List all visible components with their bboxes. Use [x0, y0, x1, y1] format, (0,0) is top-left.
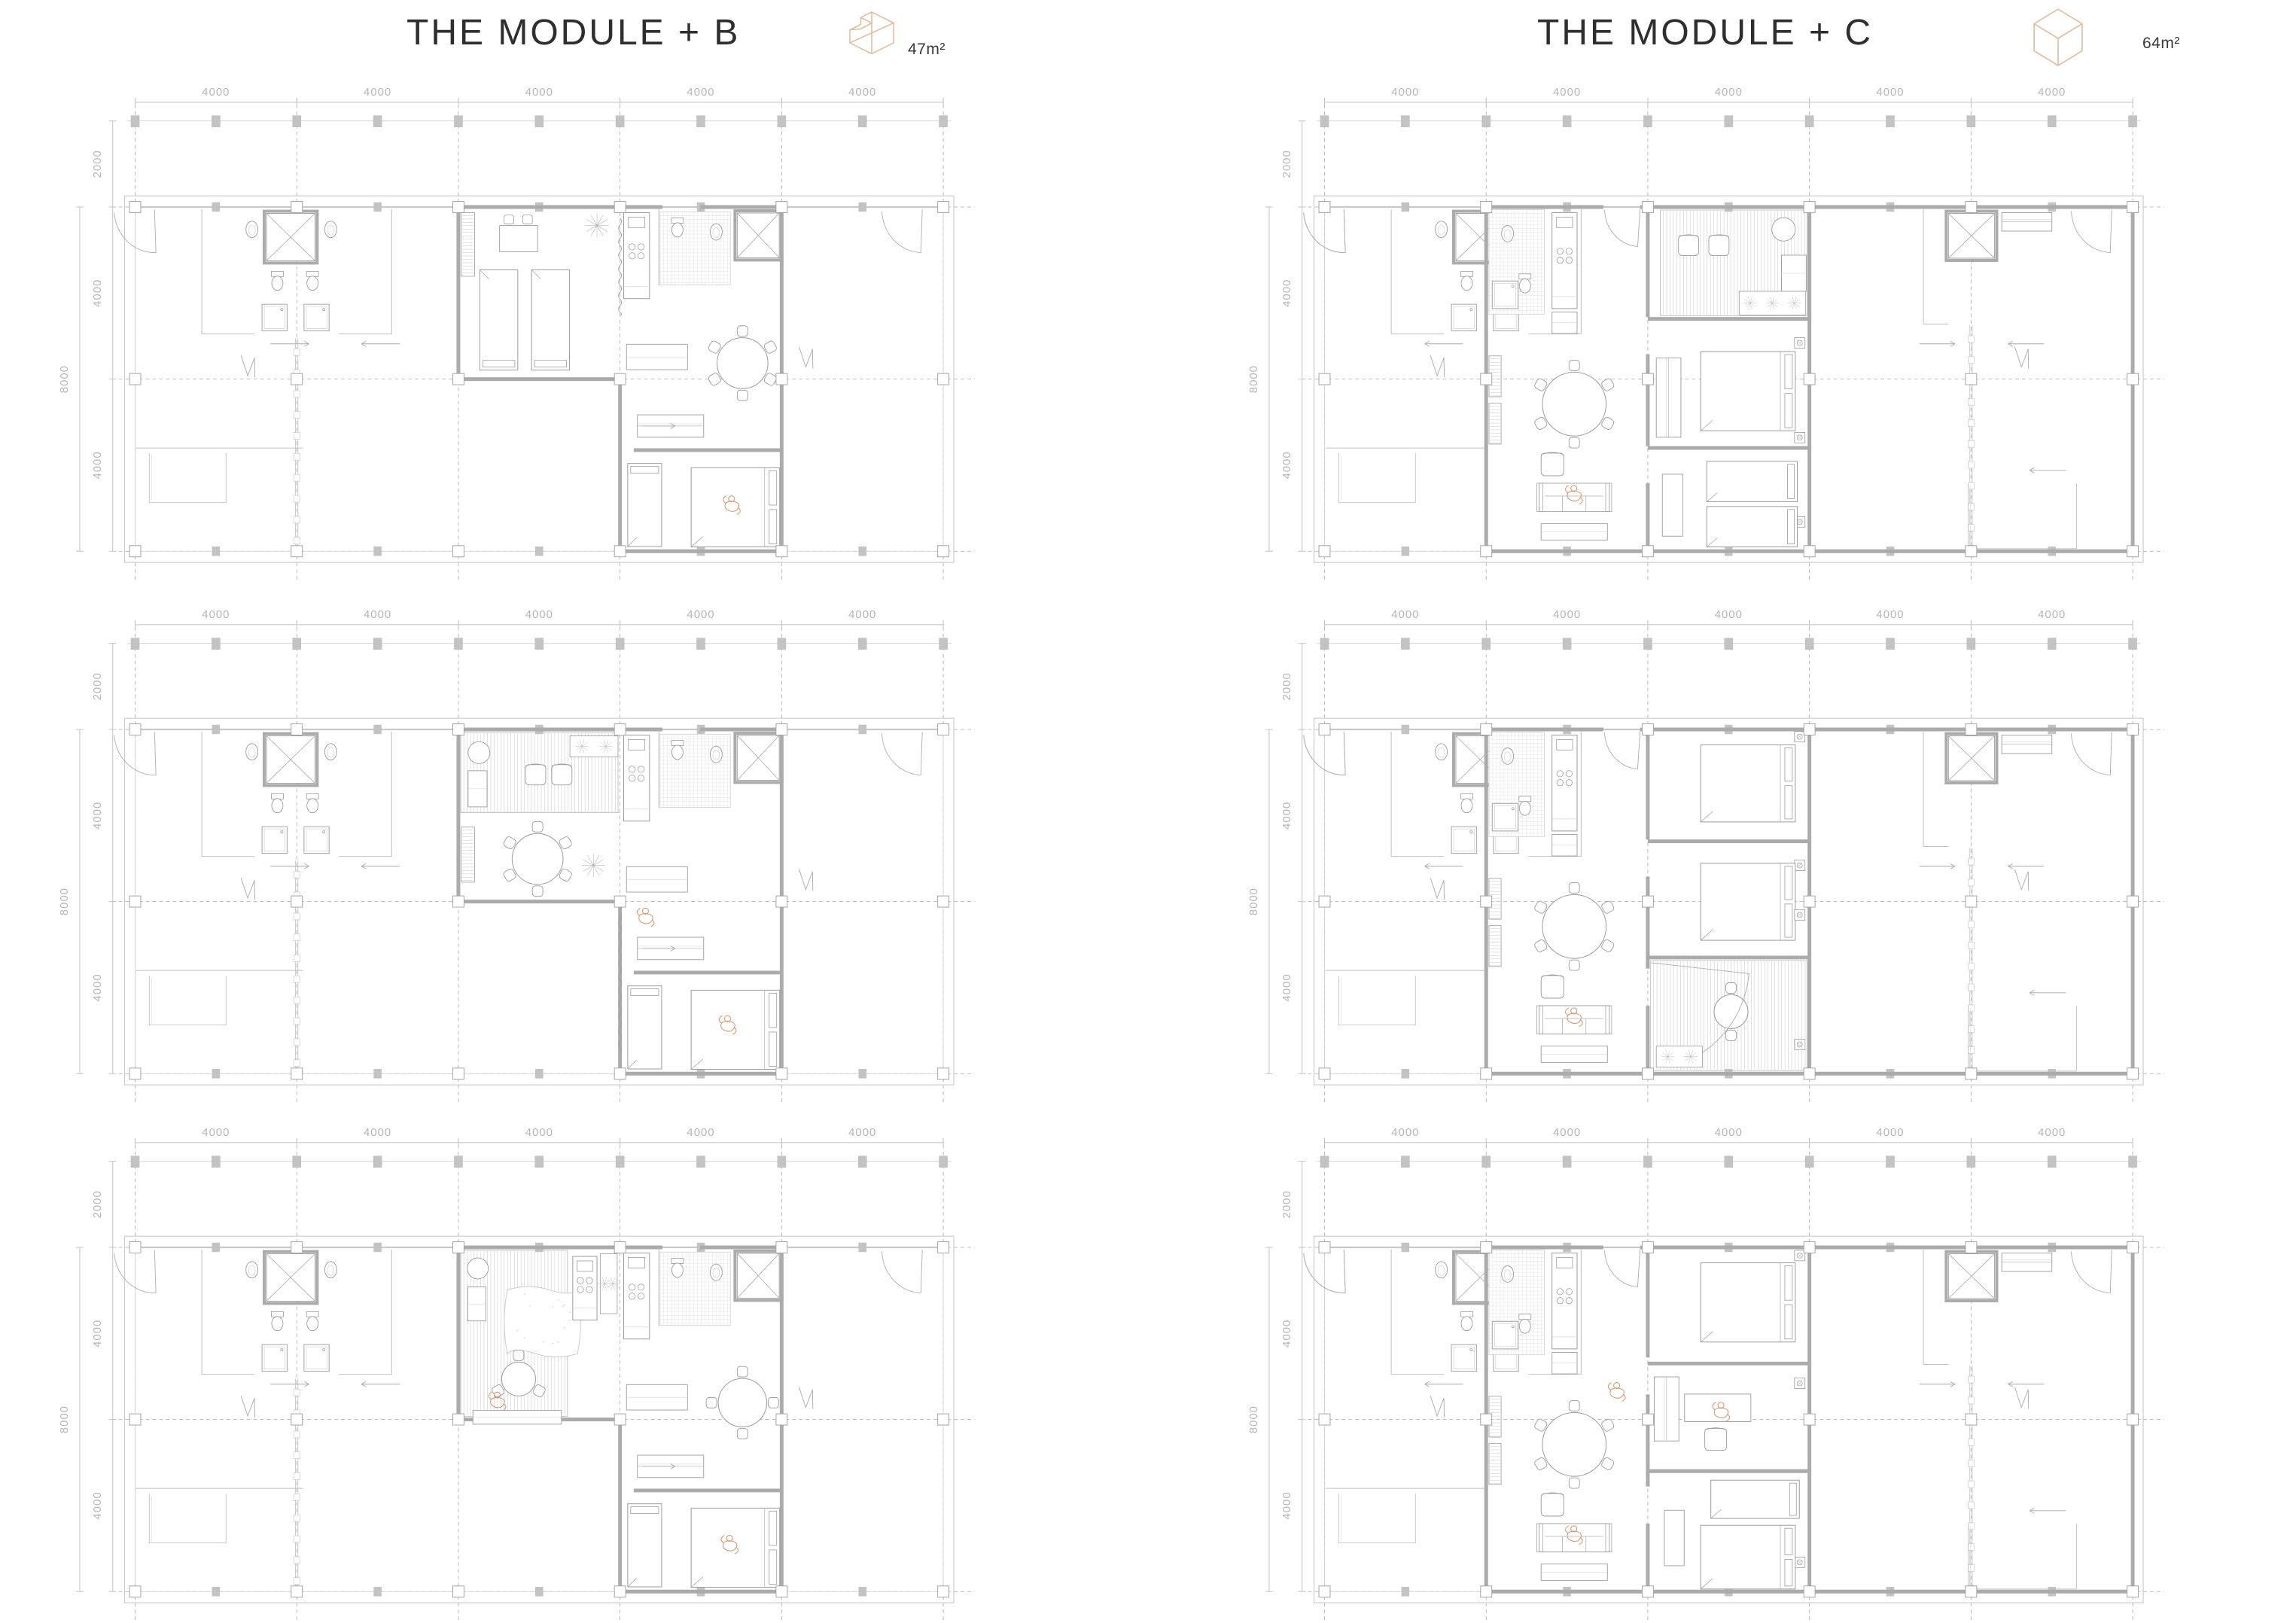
dimension-label: 4000 [525, 1127, 553, 1139]
dimension-lines: 400040004000400040002000400040008000 [1248, 1127, 2133, 1591]
direction-arrow [1425, 341, 1463, 346]
dimension-label: 2000 [92, 1190, 104, 1218]
sink [1451, 1344, 1476, 1371]
washbasin [324, 221, 336, 238]
door-swing [882, 209, 923, 252]
planter [570, 736, 618, 757]
direction-arrow [2030, 1508, 2066, 1513]
toilet [272, 271, 284, 290]
break-symbol [1430, 1396, 1444, 1417]
sofa [1537, 483, 1612, 512]
door-swing [2072, 1250, 2112, 1293]
dimension-label: 4000 [364, 609, 391, 621]
shelf [1489, 1444, 1501, 1484]
closet-outline [149, 976, 226, 1025]
shower-unit [264, 734, 317, 786]
direction-arrow [270, 1381, 309, 1387]
round-dining-table [503, 821, 573, 896]
dimension-label: 2000 [1281, 150, 1293, 178]
dimension-label: 4000 [92, 802, 104, 830]
double-bed [1701, 745, 1795, 822]
round-dining-table [706, 1366, 778, 1439]
ceiling-fan-symbol [1795, 909, 1805, 920]
wardrobe [2002, 212, 2052, 231]
colonnade-columns [1317, 638, 2141, 650]
floor-plan-module-c-plan-3: 400040004000400040002000400040008000 [1235, 1120, 2170, 1623]
dimension-label: 4000 [1715, 87, 1743, 99]
ceiling-fan-symbol [1795, 1557, 1805, 1567]
kitchen-counter [573, 1256, 597, 1320]
closet-outline [1338, 976, 1415, 1025]
washbasin [1436, 1262, 1448, 1278]
double-bed [691, 990, 780, 1069]
ceiling-fan-symbol [1795, 1039, 1805, 1049]
washbasin [324, 1262, 336, 1278]
shower-unit [735, 733, 781, 782]
shower-unit [1946, 1252, 1996, 1301]
toilet [1519, 1314, 1531, 1333]
single-bed [628, 464, 662, 547]
kitchen-counter [1552, 212, 1577, 308]
closet-outline [1338, 453, 1415, 503]
sink [304, 304, 329, 330]
cabinet [468, 771, 487, 807]
toilet [1461, 271, 1473, 290]
double-bed [691, 1508, 780, 1587]
toilet [671, 741, 684, 760]
chair [1705, 1428, 1727, 1451]
dimension-label: 2000 [1281, 672, 1293, 700]
chair [1541, 975, 1564, 998]
break-symbol [2014, 347, 2028, 369]
direction-arrow [2030, 467, 2066, 473]
shelf [1489, 926, 1501, 967]
dimension-label: 8000 [59, 365, 71, 393]
sink [1492, 1321, 1518, 1349]
dimension-label: 4000 [2038, 609, 2066, 621]
sink [262, 304, 287, 330]
shower-unit [735, 1251, 781, 1300]
door-swing [2072, 732, 2112, 775]
dimension-label: 4000 [525, 609, 553, 621]
round-dining-table [708, 326, 778, 400]
door-swing [1605, 209, 1640, 246]
shower-unit [264, 1252, 317, 1304]
dimension-label: 4000 [848, 1127, 876, 1139]
dimension-label: 4000 [1553, 609, 1581, 621]
dimension-label: 4000 [687, 87, 714, 99]
toilet [272, 793, 284, 812]
closet-outline [149, 1494, 226, 1543]
washbasin [246, 744, 258, 760]
round-washbasin [467, 1258, 489, 1279]
direction-arrow [2008, 341, 2044, 346]
plan-content [1304, 729, 2133, 1074]
ceiling-fan-symbol [1795, 1250, 1805, 1261]
washbasin [246, 1262, 258, 1278]
dimension-lines: 400040004000400040002000400040008000 [59, 609, 943, 1073]
toilet [671, 1259, 684, 1277]
single-bed [628, 986, 662, 1069]
colonnade-columns [1317, 116, 2141, 127]
tiled-floor [660, 212, 730, 285]
sink [304, 1344, 329, 1371]
person-figure [637, 908, 654, 927]
dimension-label: 4000 [848, 609, 876, 621]
single-bed [480, 269, 517, 370]
kitchen-counter [1552, 735, 1577, 830]
closet-outline [1338, 1494, 1415, 1543]
break-symbol [799, 1387, 812, 1409]
sofa [1537, 1524, 1612, 1552]
cabinet [626, 866, 687, 892]
sink [262, 1344, 287, 1371]
wardrobe [1656, 358, 1681, 437]
floor-plan-module-b-plan-3: 400040004000400040002000400040008000 [45, 1120, 981, 1623]
dimension-label: 4000 [1553, 1127, 1581, 1139]
washbasin [1502, 748, 1514, 764]
kitchen-counter [623, 735, 649, 821]
planter [1656, 1046, 1702, 1067]
dimension-label: 4000 [1715, 1127, 1743, 1139]
dimension-label: 2000 [92, 150, 104, 178]
direction-arrow [1920, 863, 1955, 869]
double-bed [1701, 863, 1795, 940]
toilet [1519, 796, 1531, 815]
break-symbol [799, 347, 812, 369]
rug [504, 1287, 580, 1357]
dimension-label: 4000 [687, 1127, 714, 1139]
direction-arrow [270, 341, 309, 346]
dimension-label: 4000 [92, 1491, 104, 1519]
shower-unit [735, 211, 781, 260]
direction-arrow [361, 863, 400, 869]
module-c-box-isometric-icon [2027, 6, 2090, 71]
dimension-label: 4000 [1281, 451, 1293, 479]
washbasin [710, 224, 722, 240]
dimension-label: 4000 [1391, 609, 1419, 621]
desk [1662, 474, 1682, 536]
double-bed [1701, 352, 1795, 431]
break-symbol [241, 878, 254, 900]
structural-grid [119, 1138, 975, 1620]
chair [1709, 235, 1729, 256]
direction-arrow [2030, 990, 2066, 995]
plan-content [1304, 1247, 2133, 1592]
plant [582, 854, 605, 877]
washbasin [1502, 1265, 1514, 1282]
direction-arrow [1425, 863, 1463, 869]
floor-plan-cell-module-b-3: 400040004000400040002000400040008000 [45, 1120, 981, 1623]
toilet [306, 793, 318, 812]
cabinet [1541, 524, 1607, 540]
washbasin [324, 744, 336, 760]
floor-plan-module-b-plan-2: 400040004000400040002000400040008000 [45, 602, 981, 1105]
colonnade-columns [127, 1156, 952, 1168]
floor-plan-cell-module-c-1: 400040004000400040002000400040008000 [1235, 80, 2170, 583]
direction-arrow [2008, 863, 2044, 869]
dimension-label: 8000 [59, 1405, 71, 1433]
dimension-label: 4000 [1876, 87, 1904, 99]
round-dining-table [1533, 360, 1615, 448]
direction-arrow [1920, 341, 1955, 346]
module-b-title: THE MODULE + B [407, 12, 740, 53]
dimension-label: 2000 [1281, 1190, 1293, 1218]
dimension-label: 4000 [364, 87, 391, 99]
single-bed [1707, 461, 1797, 502]
break-symbol [241, 355, 254, 377]
dimension-label: 4000 [92, 451, 104, 479]
module-c-title: THE MODULE + C [1537, 12, 1873, 53]
dimension-label: 4000 [202, 609, 230, 621]
door-swing [1605, 1249, 1640, 1287]
chair [525, 764, 546, 785]
round-dining-table [1533, 882, 1615, 970]
sink [1492, 803, 1518, 831]
shelf [1489, 403, 1501, 444]
colonnade-columns [127, 638, 952, 650]
dimension-label: 4000 [92, 1320, 104, 1347]
cabinet [1782, 255, 1807, 291]
dimension-label: 4000 [1281, 802, 1293, 830]
floor-plan-cell-module-c-2: 400040004000400040002000400040008000 [1235, 602, 2170, 1105]
dimension-label: 4000 [1391, 87, 1419, 99]
dimension-label: 4000 [1876, 609, 1904, 621]
cabinet [467, 1287, 486, 1321]
washbasin [710, 1264, 722, 1280]
dimension-label: 2000 [92, 672, 104, 700]
round-dining-table [1714, 982, 1748, 1040]
toilet [306, 1311, 318, 1330]
shower-unit [264, 212, 317, 263]
toilet [1461, 793, 1473, 812]
cabinet [1541, 1046, 1607, 1063]
dimension-label: 4000 [202, 87, 230, 99]
break-symbol [799, 869, 812, 891]
cabinet [1552, 834, 1577, 856]
shelf [461, 212, 475, 276]
double-bed [1701, 1525, 1795, 1589]
planter [1739, 291, 1805, 315]
direction-arrow [270, 863, 309, 869]
ceiling-fan-symbol [1795, 732, 1805, 742]
sofa [1537, 1006, 1612, 1034]
floor-plan-cell-module-b-2: 400040004000400040002000400040008000 [45, 602, 981, 1105]
direction-arrow [361, 1381, 400, 1387]
dimension-label: 4000 [1715, 609, 1743, 621]
break-symbol [1430, 355, 1444, 377]
washbasin [1436, 744, 1448, 760]
page: THE MODULE + B 47m² THE MODULE + C 64m² … [0, 0, 2296, 1623]
sink [1451, 827, 1476, 853]
dimension-label: 4000 [1391, 1127, 1419, 1139]
ceiling-fan-symbol [1795, 1378, 1805, 1389]
cabinet [1552, 312, 1577, 333]
single-bed [1711, 1480, 1800, 1518]
dimension-label: 4000 [525, 87, 553, 99]
break-symbol [1430, 878, 1444, 900]
dimension-label: 4000 [1281, 1320, 1293, 1347]
module-b-area-label: 47m² [908, 41, 946, 59]
colonnade-columns [1317, 1156, 2141, 1168]
washbasin [246, 221, 258, 238]
structural-grid [1308, 620, 2164, 1102]
planter [598, 1254, 620, 1314]
dimension-label: 4000 [687, 609, 714, 621]
dimension-label: 8000 [1248, 1405, 1260, 1433]
dimension-label: 8000 [1248, 888, 1260, 915]
round-dining-table [1533, 1400, 1615, 1488]
floor-plan-module-c-plan-2: 400040004000400040002000400040008000 [1235, 602, 2170, 1105]
door-swing [2072, 209, 2112, 252]
toilet [671, 218, 684, 237]
dimension-label: 4000 [848, 87, 876, 99]
plant [585, 213, 609, 237]
dimension-label: 4000 [1876, 1127, 1904, 1139]
kitchen-counter [623, 1253, 649, 1338]
floor-plan-module-b-plan-1: 400040004000400040002000400040008000 [45, 80, 981, 583]
dimension-label: 4000 [2038, 87, 2066, 99]
floor-plan-cell-module-b-1: 400040004000400040002000400040008000 [45, 80, 981, 583]
single-bed [1707, 507, 1797, 547]
cabinet [626, 1384, 687, 1410]
colonnade-columns [127, 116, 952, 127]
dimension-label: 8000 [59, 888, 71, 915]
washbasin [710, 746, 722, 763]
floor-plan-module-c-plan-1: 400040004000400040002000400040008000 [1235, 80, 2170, 583]
shelf [461, 827, 475, 882]
module-c-area-label: 64m² [2142, 35, 2180, 53]
shower-unit [1946, 212, 1996, 260]
closet-outline [149, 453, 226, 503]
dimension-label: 8000 [1248, 365, 1260, 393]
washbasin [1502, 225, 1514, 242]
dimension-label: 4000 [92, 973, 104, 1001]
chair [1541, 452, 1564, 476]
cabinet [1541, 1564, 1607, 1581]
wardrobe [2002, 735, 2052, 754]
toilet [306, 271, 318, 290]
kitchen-counter [623, 212, 649, 298]
table [500, 215, 537, 252]
round-washbasin [1772, 218, 1795, 241]
module-b-l-shaped-isometric-icon [842, 9, 902, 65]
double-bed [1701, 1263, 1795, 1342]
door-swing [882, 1250, 923, 1293]
tiled-floor [660, 734, 730, 807]
person-figure [1608, 1383, 1625, 1402]
single-bed [531, 269, 569, 370]
break-symbol [241, 1396, 254, 1417]
chair [1679, 235, 1699, 256]
dimension-label: 4000 [202, 1127, 230, 1139]
chair [552, 764, 572, 785]
toilet [1461, 1311, 1473, 1330]
ceiling-fan-symbol [1795, 338, 1805, 349]
direction-arrow [2008, 1381, 2044, 1387]
tiled-floor [660, 1252, 730, 1325]
toilet [272, 1311, 284, 1330]
desk [1664, 1510, 1684, 1566]
door-swing [882, 732, 923, 775]
dimension-label: 4000 [364, 1127, 391, 1139]
single-bed [628, 1504, 662, 1587]
break-symbol [2014, 1387, 2028, 1409]
dimension-label: 4000 [1281, 973, 1293, 1001]
dimension-label: 4000 [1553, 87, 1581, 99]
door-swing [1605, 731, 1640, 769]
sink [262, 827, 287, 853]
dimension-label: 4000 [1281, 279, 1293, 307]
cabinet [626, 344, 687, 370]
ceiling-fan-symbol [1795, 432, 1805, 443]
washbasin [1436, 221, 1448, 238]
double-bed [691, 467, 780, 547]
round-washbasin [468, 741, 490, 763]
cabinet [473, 1411, 562, 1424]
desk [1685, 1394, 1751, 1422]
break-symbol [2014, 869, 2028, 891]
plan-content [1304, 207, 2133, 552]
closet-outline [1969, 1006, 2077, 1071]
wardrobe [2002, 1253, 2052, 1271]
wardrobe [1655, 1377, 1679, 1441]
kitchen-counter [1552, 1253, 1577, 1348]
sink [1492, 281, 1518, 309]
ceiling-fan-symbol [1795, 860, 1805, 871]
cabinet [1552, 1352, 1577, 1374]
dimension-label: 4000 [2038, 1127, 2066, 1139]
toilet [1519, 274, 1531, 293]
closet-outline [1969, 483, 2077, 549]
direction-arrow [1425, 1381, 1463, 1387]
floor-plan-cell-module-c-3: 400040004000400040002000400040008000 [1235, 1120, 2170, 1623]
direction-arrow [361, 341, 400, 346]
sink [1451, 304, 1476, 330]
sink [304, 827, 329, 853]
chair [1541, 1493, 1564, 1516]
dimension-label: 4000 [1281, 1491, 1293, 1519]
direction-arrow [1920, 1381, 1955, 1387]
closet-outline [1969, 1524, 2077, 1589]
dimension-label: 4000 [92, 279, 104, 307]
shower-unit [1946, 734, 1996, 783]
